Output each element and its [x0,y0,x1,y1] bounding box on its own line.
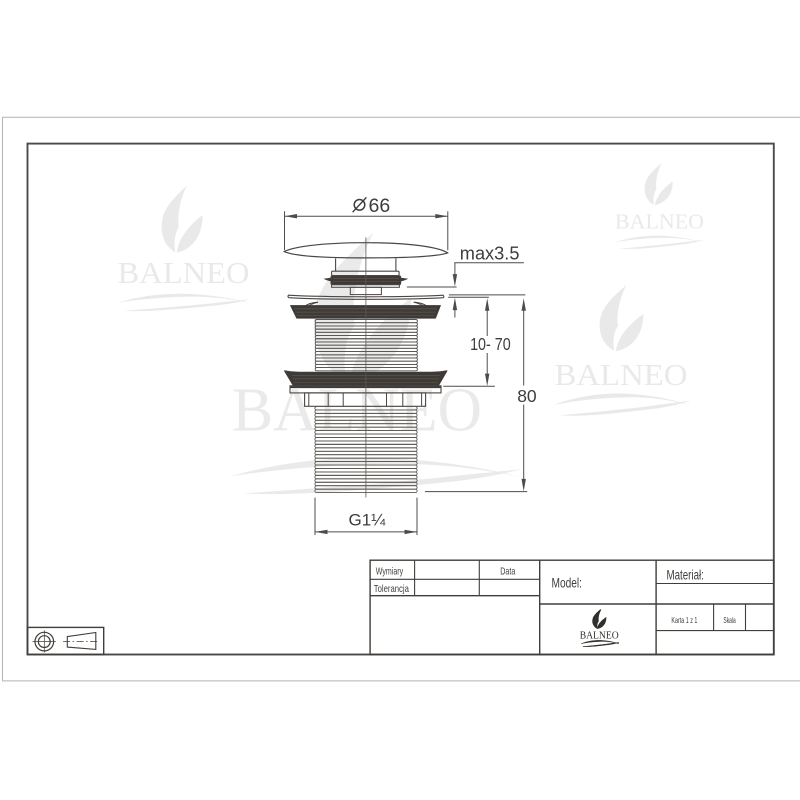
svg-text:Skala: Skala [723,616,736,625]
svg-text:Karta 1 z 1: Karta 1 z 1 [671,616,697,625]
svg-text:BALNEO: BALNEO [118,255,250,290]
svg-text:10- 70: 10- 70 [470,334,511,354]
svg-text:Materiał:: Materiał: [667,567,704,583]
svg-text:Wymiary: Wymiary [376,566,404,578]
svg-text:G1¼: G1¼ [349,510,387,529]
svg-text:Tolerancja: Tolerancja [374,583,409,595]
svg-text:Data: Data [500,565,515,577]
svg-text:BALNEO: BALNEO [615,210,704,234]
svg-text:Model:: Model: [552,575,583,591]
svg-text:80: 80 [517,386,537,406]
svg-text:BALNEO: BALNEO [580,630,619,641]
svg-text:66: 66 [369,195,391,217]
svg-text:max3.5: max3.5 [460,244,520,264]
svg-text:BALNEO: BALNEO [555,357,688,392]
